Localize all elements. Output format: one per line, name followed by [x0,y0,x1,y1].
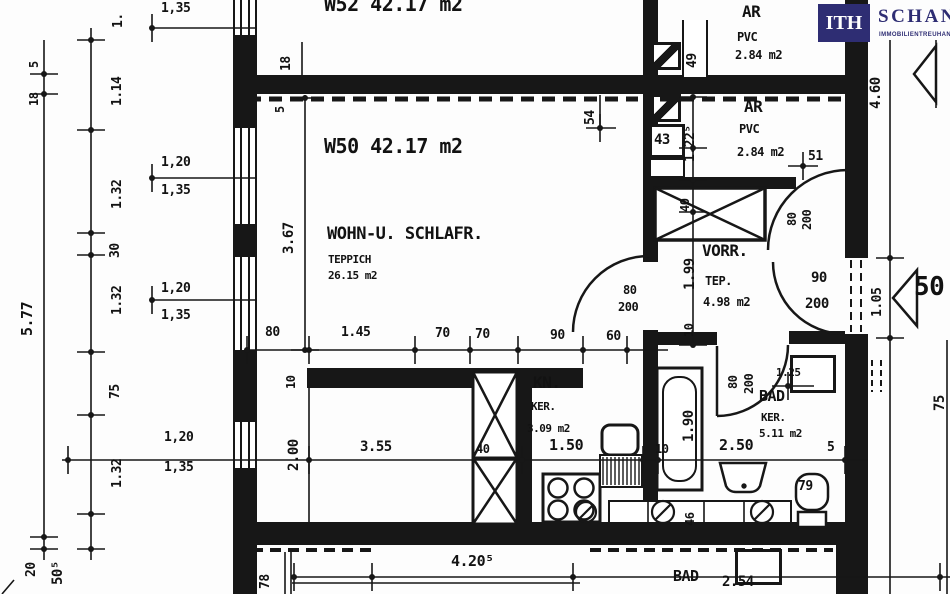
label-win-120c: 1,20 [164,431,193,444]
label-dim-40w: 40 [679,199,691,212]
label-door-entr-h: 200 [805,297,829,311]
label-win-120a: 1,20 [161,156,190,169]
label-w50-room-name: WOHN-U. SCHLAFR. [327,226,483,243]
label-dim-132c: 1.32 [111,459,124,488]
outlet-icons [576,500,773,524]
label-door-w50-h: 200 [618,301,638,313]
label-win-135b: 1,35 [161,184,190,197]
label-door-ar2-w: 80 [786,213,798,226]
label-dim-1225: 1.22⁵ [684,125,697,162]
label-dim-367: 3.67 [282,222,296,254]
label-dim-145: 1.45 [341,326,370,339]
label-dim-75: 75 [109,384,122,399]
label-dim-190: 1.90 [682,410,696,442]
label-dim-out5: 5 [28,61,40,68]
label-kn-area: 3.09 m2 [527,423,570,434]
label-dim-5a: 5 [827,441,834,454]
label-dim-int5: 5 [274,106,286,113]
brand-logo-icon: ITH [818,4,870,42]
label-kn-floor: KER. [531,401,556,412]
label-win-135d: 1,35 [164,461,193,474]
label-dim-132b: 1.32 [111,286,124,315]
label-dim-250: 2.50 [719,438,753,453]
label-door-bad-w: 80 [727,376,739,389]
label-dim-505: 50⁵ [51,561,65,585]
label-dim-460: 4.60 [869,77,883,109]
label-dim-125: 1.25 [776,367,801,378]
label-dim-132a: 1.32 [111,180,124,209]
label-w50-title: W50 42.17 m2 [324,136,463,156]
label-ar1-floor: PVC [737,31,757,43]
label-dim-200v: 2.00 [287,439,301,471]
label-vorr-area: 4.98 m2 [703,296,750,308]
label-dim-105: 1.05 [871,288,884,317]
label-door-bad-h: 200 [743,374,755,394]
label-door-w50-w: 80 [623,284,636,296]
label-ar1-area: 2.84 m2 [735,49,782,61]
label-dim-577: 5.77 [20,302,35,336]
label-dim-top-part: 1. [112,13,125,28]
label-win-120b: 1,20 [161,282,190,295]
label-dim-int18: 18 [280,56,293,71]
label-door-ar2-h: 200 [801,210,813,230]
label-bad-floor: KER. [761,412,786,423]
label-dim-20: 20 [25,562,38,577]
label-dim-46: 46 [684,513,696,526]
door-arc-livingroom [573,256,649,332]
label-ar2-name: AR [744,99,762,115]
label-dim-199: 1.99 [683,258,697,290]
label-door-entr-w: 90 [811,271,827,285]
label-dim-30: 30 [109,243,122,258]
sink-icon [600,425,642,487]
label-dim-60: 60 [606,330,621,343]
label-dim-4205: 4.20⁵ [451,554,494,569]
floorplan-page: { "brand": { "logo_box": "ITH", "name": … [0,0,950,594]
arrow-w52-icon [914,46,936,102]
label-dim-51: 51 [808,150,823,163]
label-kn-name: KN. [533,375,560,391]
label-ar2-area: 2.84 m2 [737,146,784,158]
stove-icon [543,474,600,522]
brand-tagline: IMMOBILIENTREUHAND [879,32,950,38]
label-dim-70b: 70 [475,328,490,341]
label-bad-name: BAD [759,389,785,404]
label-win-135a: 1,35 [161,2,190,15]
label-nb-bad-dim: 2.54 [722,575,754,589]
label-w52-title: W52 42.17 m2 [324,0,463,14]
label-bad-area: 5.11 m2 [759,428,802,439]
label-dim-10a: 10 [655,443,668,455]
label-ar2-floor: PVC [739,123,759,135]
label-ar1-name: AR [742,4,760,20]
label-vorr-name: VORR. [702,243,748,259]
wardrobe-icon [655,188,765,240]
label-dim-10b: 10 [285,376,297,389]
label-dim-114: 1.14 [111,77,124,106]
label-dim-54: 54 [584,110,597,125]
label-dim-78: 78 [259,574,272,589]
label-w50-area: 26.15 m2 [328,270,377,281]
label-dim-49: 49 [686,53,699,68]
brand-name: SCHANTL [878,6,950,28]
label-dim-40: 40 [476,443,489,455]
floorplan-drawing: ITH SCHANTL IMMOBILIENTREUHAND W52 42.17… [0,0,950,594]
label-wc-79: 79 [798,480,813,493]
label-dim-80: 80 [265,326,280,339]
label-dim-150: 1.50 [549,438,583,453]
label-vorr-floor: TEP. [705,275,732,287]
label-dim-43: 43 [654,133,670,147]
label-dim-out18: 18 [28,93,40,106]
washbasin-icon [720,463,766,492]
label-dim-70a: 70 [435,327,450,340]
label-dim-90: 90 [550,329,565,342]
label-dim-10c: 10 [683,324,695,337]
label-dim-75r: 75 [933,395,947,411]
label-nb-bad-name: BAD [673,569,699,584]
label-dim-355: 3.55 [360,440,392,454]
label-win-135c: 1,35 [161,309,190,322]
label-marker-50: 50 [914,274,944,300]
label-w50-floor: TEPPICH [328,254,371,265]
